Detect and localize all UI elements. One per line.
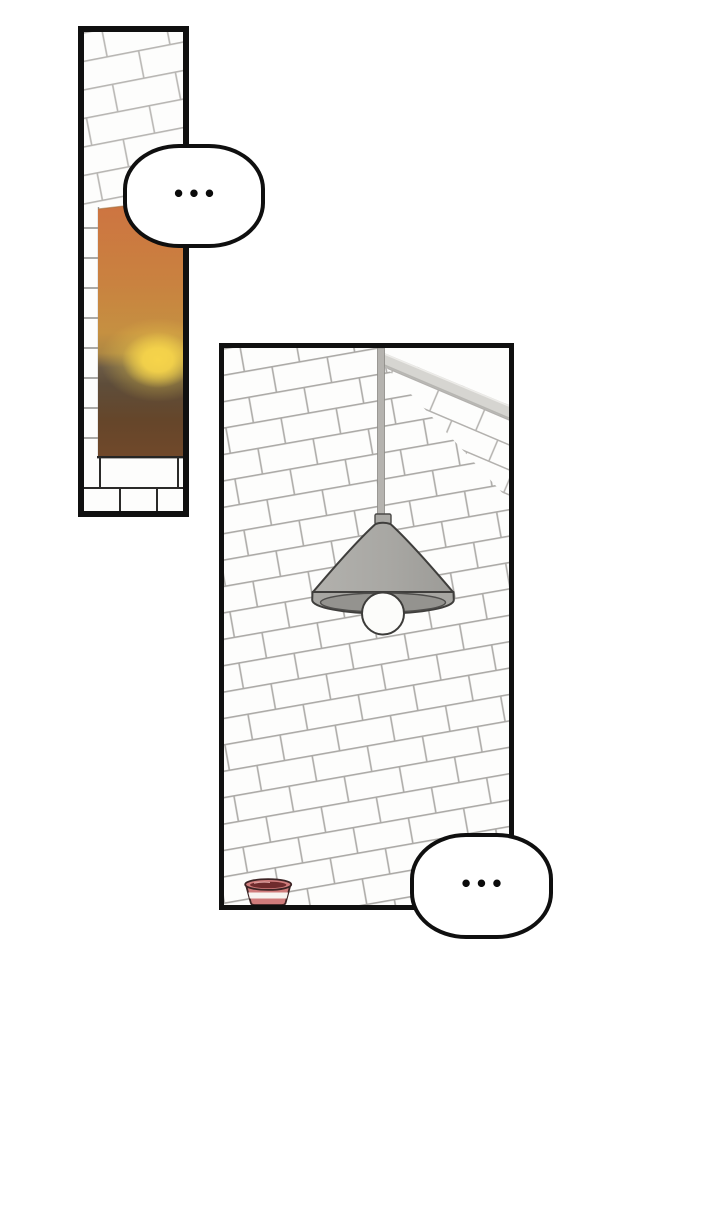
ellipsis-text-2: ••• — [457, 874, 505, 895]
light-bulb — [362, 593, 404, 635]
speech-bubble-1: ••• — [123, 144, 265, 248]
lamp-cord — [378, 348, 385, 515]
cup-stripe — [248, 893, 288, 899]
speech-bubble-2: ••• — [410, 833, 553, 939]
window-reveal — [84, 206, 99, 456]
striped-cup — [245, 879, 291, 905]
comic-page: ••• ••• — [0, 0, 720, 1205]
ellipsis-text-1: ••• — [170, 184, 218, 205]
panel-lamp-wall — [219, 343, 514, 910]
brick-window-sill — [84, 456, 183, 511]
panel-sunset-window — [78, 26, 189, 517]
lamp-wall-scene — [224, 348, 509, 905]
sunset-window-scene — [84, 32, 183, 511]
